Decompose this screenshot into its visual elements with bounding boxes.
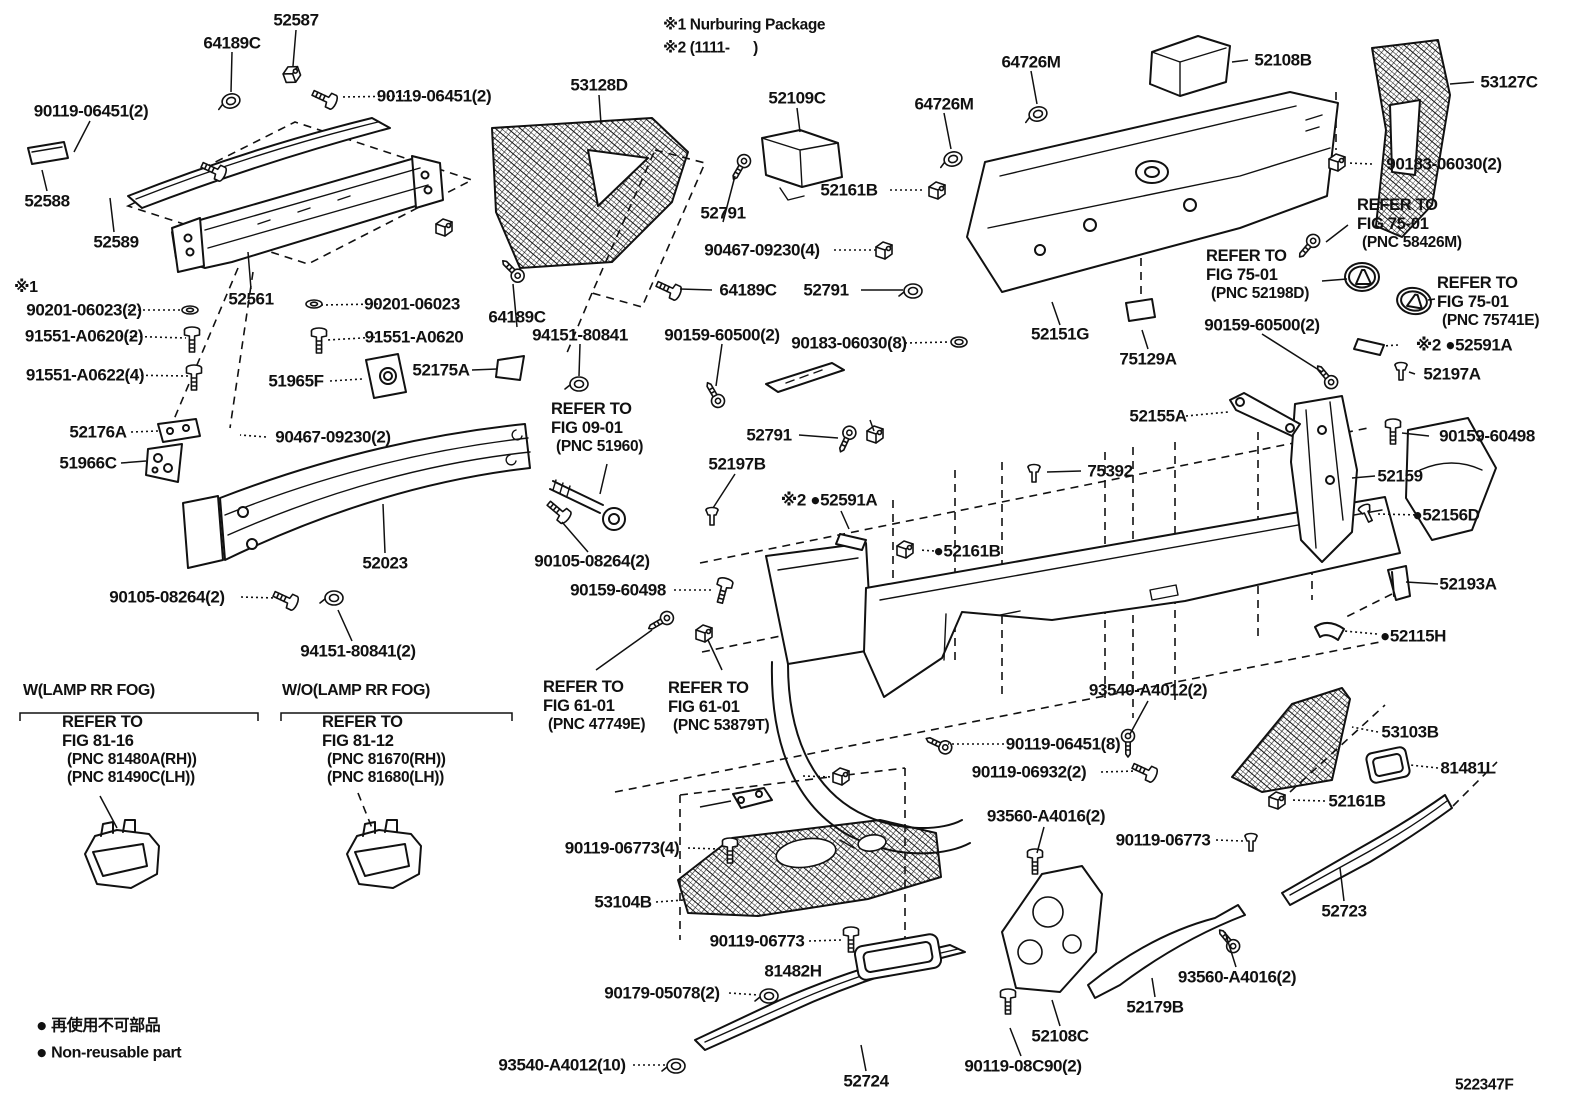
refer-line: REFER TO xyxy=(1206,247,1309,266)
footnote-1: ※1 Nurburing Package xyxy=(663,17,825,33)
legend-text: 再使用不可部品 xyxy=(51,1018,160,1035)
part-label-52588: 52588 xyxy=(24,193,69,210)
part-label-90183-06030-8: 90183-06030(8) xyxy=(791,335,906,352)
part-label-52109c: 52109C xyxy=(768,90,825,107)
part-label-53128d: 53128D xyxy=(570,77,627,94)
non-reusable-dot-icon: ● xyxy=(36,1016,47,1037)
refer-line: FIG 75-01 xyxy=(1206,266,1309,285)
part-label-90119-06773-right: 90119-06773 xyxy=(1116,832,1211,849)
part-label-53103b: 53103B xyxy=(1381,724,1438,741)
legend-row-2: ● Non-reusable part xyxy=(36,1044,181,1063)
refer-line: FIG 81-16 xyxy=(62,732,197,751)
part-label-52151g: 52151G xyxy=(1031,326,1089,343)
part-label-52791-top: 52791 xyxy=(700,205,745,222)
refer-line: (PNC 81490C(LH)) xyxy=(62,769,197,787)
part-label-52193a: 52193A xyxy=(1439,576,1496,593)
refer-block-fig-75-01-75741e: REFER TOFIG 75-01(PNC 75741E) xyxy=(1437,274,1539,330)
part-label-52791-center: 52791 xyxy=(746,427,791,444)
part-label-52161b-top: 52161B xyxy=(820,182,877,199)
part-label-91551-a0622-4: 91551-A0622(4) xyxy=(26,367,144,384)
part-label-90105-08264-2-mid: 90105-08264(2) xyxy=(534,553,649,570)
refer-line: (PNC 81680(LH)) xyxy=(322,769,446,787)
part-label-90159-60498-mid: 90159-60498 xyxy=(570,582,666,599)
refer-line: (PNC 75741E) xyxy=(1437,312,1539,330)
part-label-52197b: 52197B xyxy=(708,456,765,473)
part-label-52176a: 52176A xyxy=(69,424,126,441)
part-label-90105-08264-2-left: 90105-08264(2) xyxy=(109,589,224,606)
part-label-52791-mid: 52791 xyxy=(803,282,848,299)
refer-line: REFER TO xyxy=(551,400,643,419)
part-label-52155a: 52155A xyxy=(1129,408,1186,425)
part-label-52108b: 52108B xyxy=(1254,52,1311,69)
part-label-52724: 52724 xyxy=(843,1073,888,1090)
part-label-w-lamp-header: W(LAMP RR FOG) xyxy=(23,683,155,699)
part-label-52023: 52023 xyxy=(362,555,407,572)
part-label-90119-06932-2: 90119-06932(2) xyxy=(972,764,1086,781)
part-label-90467-09230-2: 90467-09230(2) xyxy=(275,429,390,446)
part-label-53104b: 53104B xyxy=(594,894,651,911)
part-label-90119-06773-mid: 90119-06773 xyxy=(710,933,805,950)
refer-block-fig-61-01-47749e: REFER TOFIG 61-01(PNC 47749E) xyxy=(543,678,645,734)
part-label-52108c: 52108C xyxy=(1031,1028,1088,1045)
refer-block-fig-75-01-58426m: REFER TOFIG 75-01(PNC 58426M) xyxy=(1357,196,1462,252)
part-label-91551-a0620: 91551-A0620 xyxy=(365,329,464,346)
refer-line: (PNC 51960) xyxy=(551,438,643,456)
part-label-52591a-right: ※2 ●52591A xyxy=(1416,337,1513,354)
non-reusable-dot-icon: ● xyxy=(36,1043,47,1064)
refer-block-fig-81-16: REFER TOFIG 81-16(PNC 81480A(RH))(PNC 81… xyxy=(62,713,197,787)
refer-line: REFER TO xyxy=(543,678,645,697)
refer-line: REFER TO xyxy=(1437,274,1539,293)
diagram-labels-layer: 5258764189C90119-06451(2)90119-06451(2)5… xyxy=(0,0,1592,1099)
refer-line: FIG 81-12 xyxy=(322,732,446,751)
refer-line: FIG 75-01 xyxy=(1437,293,1539,312)
refer-line: (PNC 47749E) xyxy=(543,716,645,734)
part-label-90159-60500-2-left: 90159-60500(2) xyxy=(664,327,779,344)
part-label-64726m-upper: 64726M xyxy=(1001,54,1060,71)
diagram-code: 522347F xyxy=(1455,1077,1513,1093)
part-label-52175a: 52175A xyxy=(412,362,469,379)
refer-line: FIG 09-01 xyxy=(551,419,643,438)
refer-line: (PNC 81480A(RH)) xyxy=(62,751,197,769)
part-label-90201-06023: 90201-06023 xyxy=(364,296,460,313)
part-label-note1-mark: ※1 xyxy=(14,280,38,296)
part-label-wo-lamp-header: W/O(LAMP RR FOG) xyxy=(282,683,430,699)
part-label-51965f: 51965F xyxy=(268,373,323,390)
part-label-91551-a0620-2: 91551-A0620(2) xyxy=(25,328,143,345)
part-label-90467-09230-4-top: 90467-09230(4) xyxy=(704,242,819,259)
part-label-90179-05078-2: 90179-05078(2) xyxy=(604,985,719,1002)
refer-block-fig-61-01-53879t: REFER TOFIG 61-01(PNC 53879T) xyxy=(668,679,769,735)
refer-block-fig-09-01-51960: REFER TOFIG 09-01(PNC 51960) xyxy=(551,400,643,456)
part-label-64726m-lower: 64726M xyxy=(914,96,973,113)
part-label-52591a-center: ※2 ●52591A xyxy=(781,492,878,509)
part-label-90159-60500-2-right: 90159-60500(2) xyxy=(1204,317,1319,334)
part-label-52197a: 52197A xyxy=(1423,366,1480,383)
part-label-52561: 52561 xyxy=(228,291,273,308)
part-label-51966c: 51966C xyxy=(59,455,116,472)
parts-diagram-canvas: 5258764189C90119-06451(2)90119-06451(2)5… xyxy=(0,0,1592,1099)
part-label-52161b-center: ●52161B xyxy=(933,543,1000,560)
part-label-90201-06023-2: 90201-06023(2) xyxy=(26,302,141,319)
part-label-52161b-bottom: 52161B xyxy=(1328,793,1385,810)
part-label-52589: 52589 xyxy=(93,234,138,251)
part-label-93540-a4012-2: 93540-A4012(2) xyxy=(1089,682,1207,699)
part-label-90119-06451-8: 90119-06451(8) xyxy=(1006,736,1120,753)
refer-line: FIG 61-01 xyxy=(668,698,769,717)
part-label-81481l: 81481L xyxy=(1440,760,1495,777)
part-label-81482h: 81482H xyxy=(764,963,821,980)
refer-line: REFER TO xyxy=(1357,196,1462,215)
refer-line: REFER TO xyxy=(668,679,769,698)
part-label-90119-06451-2-left: 90119-06451(2) xyxy=(34,103,148,120)
part-label-90183-06030-2: 90183-06030(2) xyxy=(1386,156,1501,173)
part-label-64189c-mid: 64189C xyxy=(488,309,545,326)
part-label-52179b: 52179B xyxy=(1126,999,1183,1016)
refer-block-fig-75-01-52198d: REFER TOFIG 75-01(PNC 52198D) xyxy=(1206,247,1309,303)
part-label-52587: 52587 xyxy=(273,12,318,29)
part-label-93560-a4016-2-right: 93560-A4016(2) xyxy=(1178,969,1296,986)
part-label-52159: 52159 xyxy=(1377,468,1422,485)
part-label-90119-06773-4: 90119-06773(4) xyxy=(565,840,679,857)
part-label-94151-80841: 94151-80841 xyxy=(532,327,628,344)
refer-line: (PNC 58426M) xyxy=(1357,234,1462,252)
part-label-93540-a4012-10: 93540-A4012(10) xyxy=(498,1057,625,1074)
part-label-90119-06451-2-right: 90119-06451(2) xyxy=(377,88,491,105)
refer-block-fig-81-12: REFER TOFIG 81-12(PNC 81670(RH))(PNC 816… xyxy=(322,713,446,787)
part-label-64189c-top: 64189C xyxy=(203,35,260,52)
part-label-94151-80841-2: 94151-80841(2) xyxy=(300,643,415,660)
refer-line: FIG 75-01 xyxy=(1357,215,1462,234)
refer-line: REFER TO xyxy=(62,713,197,732)
part-label-64189c-mid2: 64189C xyxy=(719,282,776,299)
part-label-90119-08c90-2: 90119-08C90(2) xyxy=(964,1058,1081,1075)
part-label-90159-60498-right: 90159-60498 xyxy=(1439,428,1535,445)
part-label-75129a: 75129A xyxy=(1119,351,1176,368)
footnote-2: ※2 (1111- ) xyxy=(663,40,758,56)
part-label-75392: 75392 xyxy=(1087,463,1132,480)
legend-row-1: ● 再使用不可部品 xyxy=(36,1017,160,1036)
part-label-52156d: ●52156D xyxy=(1412,507,1479,524)
part-label-53127c: 53127C xyxy=(1480,74,1537,91)
part-label-52723: 52723 xyxy=(1321,903,1366,920)
refer-line: (PNC 53879T) xyxy=(668,717,769,735)
part-label-52115h: ●52115H xyxy=(1380,628,1446,645)
part-label-93560-a4016-2-left: 93560-A4016(2) xyxy=(987,808,1105,825)
refer-line: FIG 61-01 xyxy=(543,697,645,716)
legend-text: Non-reusable part xyxy=(51,1045,181,1062)
refer-line: (PNC 52198D) xyxy=(1206,285,1309,303)
refer-line: REFER TO xyxy=(322,713,446,732)
refer-line: (PNC 81670(RH)) xyxy=(322,751,446,769)
